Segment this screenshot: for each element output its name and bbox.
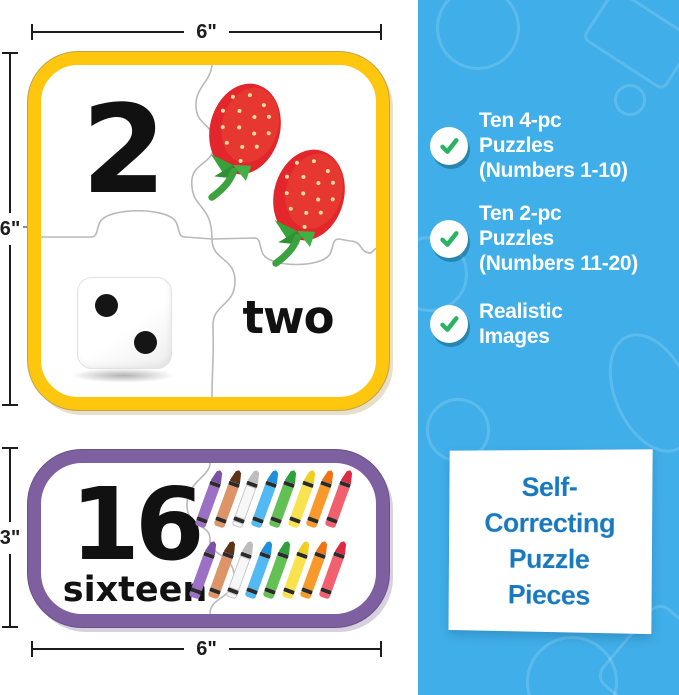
dimension-tick — [380, 641, 382, 657]
dice-illustration — [77, 277, 172, 369]
puzzle-card-two: 2 — [28, 52, 389, 410]
dimension-label-3in: 3" — [0, 522, 20, 554]
diploma-doodle-icon — [581, 0, 679, 92]
feature-panel: Ten 4-pc Puzzles (Numbers 1-10) Ten 2-pc… — [418, 0, 679, 695]
dimension-line — [9, 245, 11, 404]
dice-pip — [134, 331, 157, 354]
checkmark-icon — [430, 305, 468, 343]
crayons — [41, 463, 376, 614]
dimension-tick — [380, 24, 382, 40]
dimension-line — [9, 449, 11, 522]
callout-card: Self- Correcting Puzzle Pieces — [448, 449, 652, 634]
puzzle-numeral-2: 2 — [59, 89, 185, 211]
puzzle-word-two: two — [213, 295, 363, 340]
dimension-line — [33, 648, 184, 650]
dice-pip — [95, 294, 118, 317]
checkmark-icon — [430, 127, 468, 165]
feature-text: Ten 2-pc Puzzles (Numbers 11-20) — [479, 201, 638, 276]
feature-item-realistic: Realistic Images — [430, 299, 563, 349]
feature-text: Ten 4-pc Puzzles (Numbers 1-10) — [479, 108, 628, 183]
dimension-line — [229, 31, 380, 33]
dimension-line — [229, 648, 380, 650]
dimension-line — [33, 31, 184, 33]
dimension-line — [9, 554, 11, 627]
dimension-label-top: 6" — [184, 22, 229, 42]
violin-doodle-icon — [592, 320, 679, 466]
callout-text: Self- Correcting Puzzle Pieces — [484, 469, 616, 614]
feature-item-2pc: Ten 2-pc Puzzles (Numbers 11-20) — [430, 201, 638, 276]
feature-text: Realistic Images — [479, 299, 563, 349]
dimension-tick — [2, 626, 18, 628]
dimension-left-bottom: 3" — [0, 447, 20, 628]
dimension-label-bottom: 6" — [184, 639, 229, 659]
dimension-top: 6" — [31, 24, 382, 40]
dimension-left: 6" — [0, 52, 20, 406]
puzzle-card-sixteen: 16 sixteen — [28, 450, 389, 627]
dimension-line — [9, 54, 11, 213]
dice-shadow — [69, 368, 177, 383]
feature-item-4pc: Ten 4-pc Puzzles (Numbers 1-10) — [430, 108, 628, 183]
clock-doodle-icon — [436, 0, 520, 70]
dimension-label-left: 6" — [0, 213, 20, 245]
product-image: 6" 6" 3" 6" — [0, 0, 679, 695]
checkmark-icon — [430, 220, 468, 258]
dimension-bottom: 6" — [31, 641, 382, 657]
dimension-tick — [2, 404, 18, 406]
strawberries-illustration — [203, 77, 371, 272]
